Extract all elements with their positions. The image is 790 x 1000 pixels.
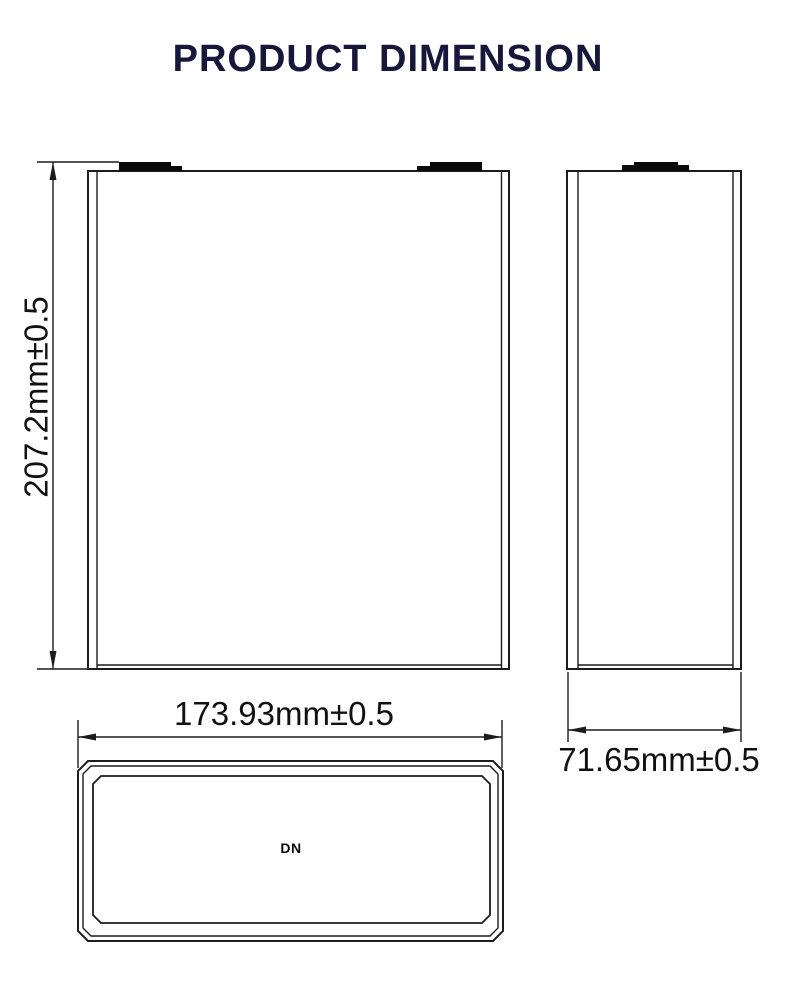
side-width-dimension: 71.65mm±0.5 bbox=[558, 672, 760, 778]
side-terminal bbox=[622, 162, 689, 171]
arrow-right-icon bbox=[723, 727, 741, 734]
page-title: PRODUCT DIMENSION bbox=[173, 38, 604, 80]
arrow-right-icon bbox=[484, 734, 502, 741]
left-terminal bbox=[119, 162, 182, 171]
top-view: DN bbox=[78, 761, 503, 941]
arrow-left-icon bbox=[78, 734, 96, 741]
front-view bbox=[88, 162, 509, 669]
product-dimension-page: PRODUCT DIMENSION 207.2mm±0.5 173 bbox=[0, 0, 790, 1000]
front-view-outline bbox=[88, 171, 509, 669]
arrow-down-icon bbox=[50, 651, 57, 669]
side-width-dimension-label: 71.65mm±0.5 bbox=[558, 741, 760, 778]
vent-marking-label: DN bbox=[280, 840, 301, 856]
front-width-dimension-label: 173.93mm±0.5 bbox=[174, 695, 394, 732]
side-view bbox=[567, 162, 741, 669]
height-dimension-label: 207.2mm±0.5 bbox=[18, 296, 55, 498]
dimension-drawing: PRODUCT DIMENSION 207.2mm±0.5 173 bbox=[0, 0, 790, 1000]
right-terminal bbox=[417, 162, 482, 171]
arrow-up-icon bbox=[50, 162, 57, 180]
arrow-left-icon bbox=[568, 727, 586, 734]
front-width-dimension: 173.93mm±0.5 bbox=[78, 695, 502, 768]
side-view-outline bbox=[567, 171, 741, 669]
